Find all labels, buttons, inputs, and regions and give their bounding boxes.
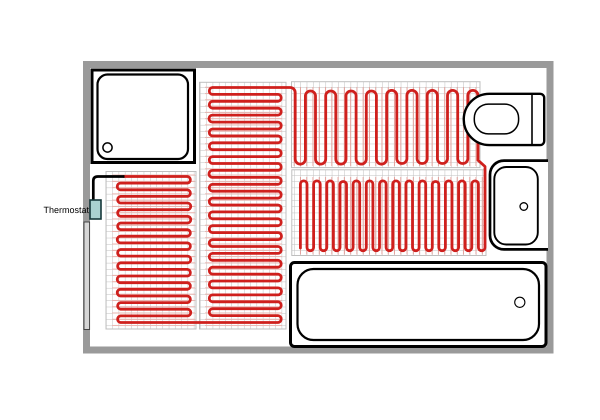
svg-text:Thermostat: Thermostat: [43, 205, 89, 215]
